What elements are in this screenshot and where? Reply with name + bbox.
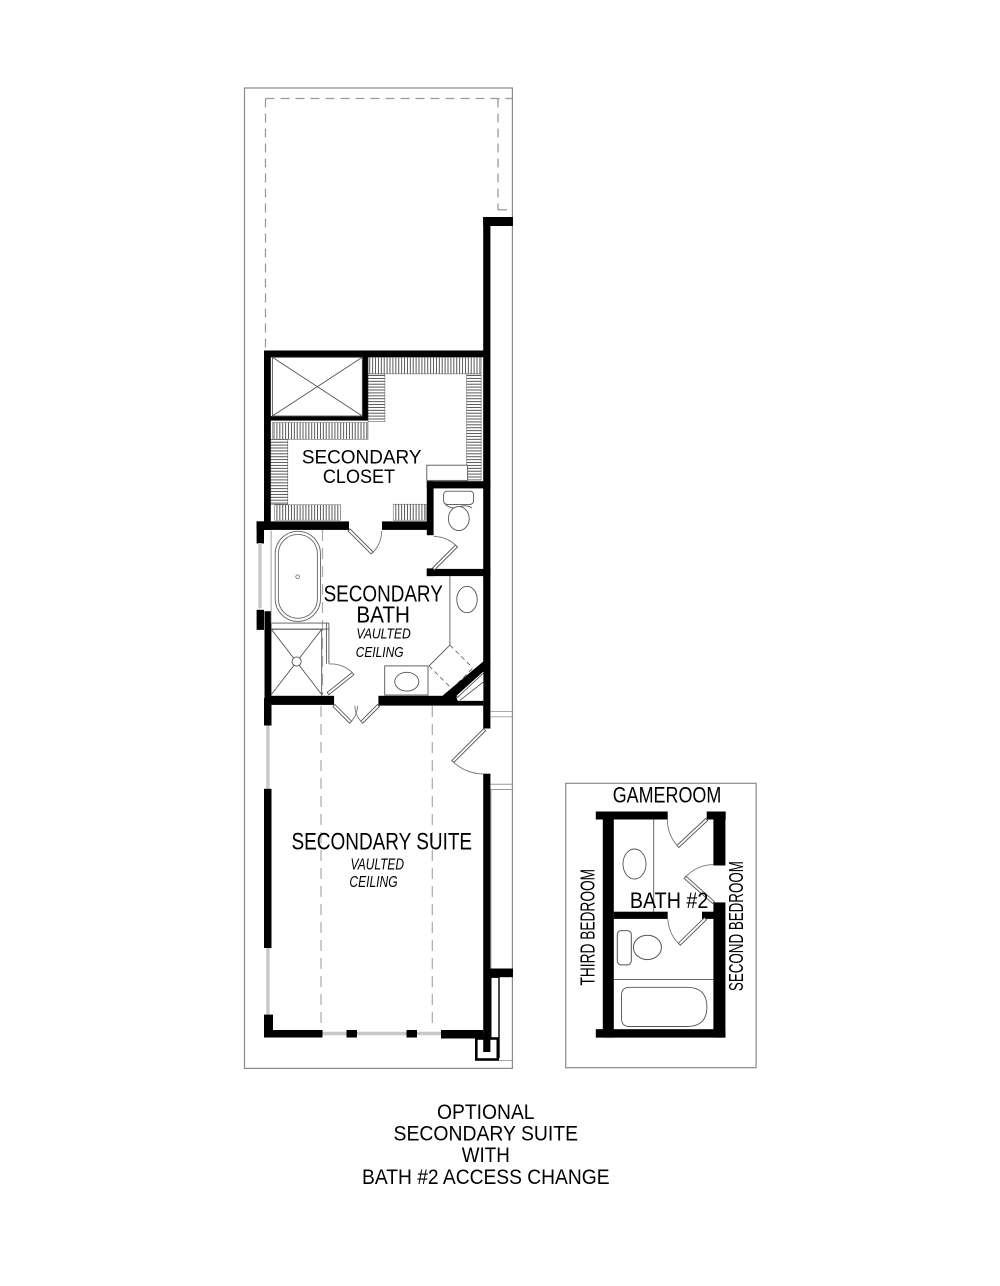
svg-text:GAMEROOM: GAMEROOM [613,783,722,808]
svg-text:BATH #2 ACCESS CHANGE: BATH #2 ACCESS CHANGE [362,1166,610,1189]
svg-text:OPTIONAL: OPTIONAL [437,1101,535,1124]
svg-text:SECONDARY: SECONDARY [302,446,422,468]
svg-text:CEILING: CEILING [356,645,404,661]
svg-text:WITH: WITH [462,1144,510,1167]
svg-text:VAULTED: VAULTED [350,856,404,873]
svg-text:VAULTED: VAULTED [356,626,411,642]
svg-text:BATH: BATH [356,601,410,627]
svg-text:CLOSET: CLOSET [323,466,395,488]
svg-text:BATH #2: BATH #2 [630,888,708,913]
svg-text:SECOND BEDROOM: SECOND BEDROOM [726,861,748,991]
svg-text:THIRD BEDROOM: THIRD BEDROOM [577,869,599,986]
svg-text:CEILING: CEILING [349,874,397,891]
svg-text:SECONDARY SUITE: SECONDARY SUITE [394,1123,579,1146]
svg-text:SECONDARY SUITE: SECONDARY SUITE [291,828,472,855]
